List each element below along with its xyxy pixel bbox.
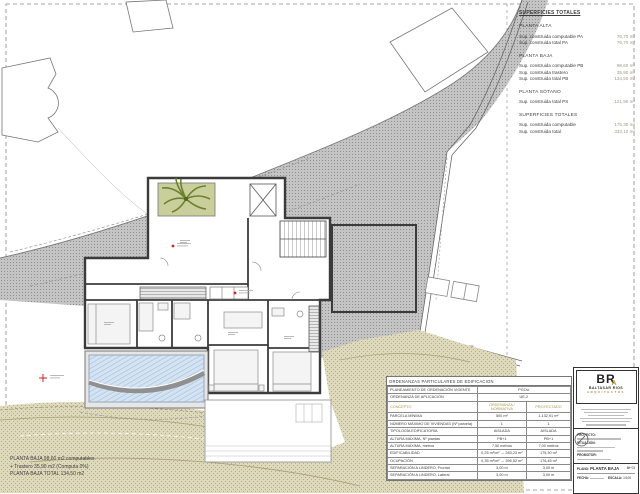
date-label: FECHA:: [577, 476, 589, 480]
surface-row: Sup. construida total 333,10 m²: [519, 129, 635, 135]
cell-concept: OCUPACIÓN: [388, 457, 478, 464]
surface-label: Sup. construida total PS: [519, 99, 568, 105]
table-row: TIPOLOGÍA EDIFICATORIA AISLADA AISLADA: [388, 428, 571, 435]
header-normativa: ORDENANZA / NORMATIVA: [477, 401, 526, 413]
surfaces-panel: SUPERFICIES TOTALES PLANTA ALTA Sup. con…: [519, 10, 635, 142]
table-row: NÚMERO MÁXIMO DE VIVIENDAS (Nº parcela) …: [388, 420, 571, 427]
cell-concept: TIPOLOGÍA EDIFICATORIA: [388, 428, 478, 435]
surface-value: 76,70 m²: [617, 40, 635, 46]
scale-label: ESCALA:: [608, 476, 622, 480]
terrace: [205, 400, 331, 462]
section-title: PLANTA SÓTANO: [519, 90, 635, 97]
location-value-line: [577, 447, 615, 449]
cell-concept: EDIFICABILIDAD: [388, 450, 478, 457]
plan-meta-row: FECHA: ESCALA: 1/100: [577, 476, 635, 480]
basement-roof-block: [332, 225, 416, 312]
header-proyectado: PROYECTADO: [527, 401, 571, 413]
cell-normativa: 0,25 m²/m² → 283,23 m²: [477, 450, 526, 457]
cell-value: UE-2: [477, 394, 570, 401]
cell-proyectado: 175,30 m²: [527, 450, 571, 457]
header-concept: CONCEPTO: [388, 401, 478, 413]
surface-label: Sup. construida total PA: [519, 40, 568, 46]
plan-number: 03: [631, 466, 635, 470]
title-block: BR A BALTASAR RIOS ARQUITECTOS PROYECTO:…: [573, 367, 639, 494]
location-value-line: [577, 450, 603, 452]
section-title: PLANTA ALTA: [519, 24, 635, 31]
cell-proyectado: 176,45 m²: [527, 457, 571, 464]
cell-concept: SEPARACIÓN A LINDERO, Lateral: [388, 472, 478, 479]
table-row: ALTURA MÁXIMA, Nº plantas PB+1 PB+1: [388, 435, 571, 442]
cell-proyectado: 1.132,91 m²: [527, 413, 571, 420]
cell-proyectado: 3,00 m: [527, 472, 571, 479]
cell-label: ORDENANZA DE APLICACIÓN: [388, 394, 478, 401]
note-line: + Trastero 35,90 m2 (Computa 0%): [10, 464, 94, 472]
fine-print: [574, 405, 638, 429]
section-title: PLANTA BAJA: [519, 54, 635, 61]
section-planta-sotano: PLANTA SÓTANO Sup. construida total PS 1…: [519, 90, 635, 106]
cell-proyectado: 1: [527, 420, 571, 427]
table-header-row: CONCEPTO ORDENANZA / NORMATIVA PROYECTAD…: [388, 401, 571, 413]
cell-proyectado: AISLADA: [527, 428, 571, 435]
surface-value: 333,10 m²: [614, 129, 635, 135]
date-value-line: [590, 478, 604, 480]
scale-value: 1/100: [623, 476, 631, 480]
parking-pads: [425, 277, 479, 302]
cell-concept: ALTURA MÁXIMA, metros: [388, 442, 478, 449]
logo-initials: BR: [577, 373, 636, 385]
surface-row: Sup. construida total PB 134,50 m²: [519, 76, 635, 82]
promoter-value-line: [577, 459, 611, 461]
logo-accent-letter: A: [612, 380, 617, 387]
table-row: SEPARACIÓN A LINDERO, Frontal 3,00 m 3,0…: [388, 464, 571, 471]
cell-normativa: PB+1: [477, 435, 526, 442]
plan-label: PLANO:: [577, 467, 589, 471]
fine-print-line: [581, 409, 631, 411]
project-info: PROYECTO: SITUACIÓN: PROMOTOR:: [574, 429, 638, 464]
architect-subtitle: ARQUITECTOS: [577, 390, 636, 394]
cell-value: PGOU: [477, 387, 570, 394]
note-line: PLANTA BAJA 98,60 m2 computables: [10, 456, 94, 464]
surfaces-title: SUPERFICIES TOTALES: [519, 10, 635, 17]
cell-concept: SEPARACIÓN A LINDERO, Frontal: [388, 464, 478, 471]
notes-block: PLANTA BAJA 98,60 m2 computables + Trast…: [10, 456, 94, 479]
fine-print-line: [580, 418, 632, 420]
table-row: PARCELA MÍNIMA 500 m² 1.132,91 m²: [388, 413, 571, 420]
ordenanzas-title: ORDENANZAS PARTICULARES DE EDIFICACION: [387, 377, 571, 386]
cell-normativa: AISLADA: [477, 428, 526, 435]
surface-value: 121,90 m²: [614, 99, 635, 105]
table-row: EDIFICABILIDAD 0,25 m²/m² → 283,23 m² 17…: [388, 450, 571, 457]
table-row: OCUPACIÓN 0,35 m²/m² → 396,52 m² 176,45 …: [388, 457, 571, 464]
surface-label: Sup. construida total: [519, 129, 561, 135]
fine-print-line: [584, 412, 628, 414]
section-totales: SUPERFICIES TOTALES Sup. construida comp…: [519, 113, 635, 136]
cell-proyectado: 7,00 metros: [527, 442, 571, 449]
cell-concept: ALTURA MÁXIMA, Nº plantas: [388, 435, 478, 442]
table-row: SEPARACIÓN A LINDERO, Lateral 3,00 m 3,0…: [388, 472, 571, 479]
pergola-louvers: [140, 287, 248, 299]
cell-concept: PARCELA MÍNIMA: [388, 413, 478, 420]
surface-value: 134,50 m²: [614, 76, 635, 82]
surface-label: Sup. construida total PB: [519, 76, 568, 82]
fine-print-line: [586, 424, 626, 426]
plan-name-box: PLANO: PLANTA BAJA Nº 03 FECHA: ESCALA: …: [574, 464, 638, 482]
cell-normativa: 7,50 metros: [477, 442, 526, 449]
cell-concept: NÚMERO MÁXIMO DE VIVIENDAS (Nº parcela): [388, 420, 478, 427]
cell-normativa: 0,35 m²/m² → 396,52 m²: [477, 457, 526, 464]
cell-normativa: 1: [477, 420, 526, 427]
skylight: [250, 184, 276, 216]
ordenanzas-table: ORDENANZAS PARTICULARES DE EDIFICACION P…: [386, 376, 572, 481]
fine-print-line: [588, 415, 624, 417]
cell-proyectado: 3,00 m: [527, 464, 571, 471]
plan-name-row: PLANO: PLANTA BAJA Nº 03: [577, 466, 635, 474]
plan-value: PLANTA BAJA: [590, 466, 619, 471]
courtyard-palm: [158, 178, 215, 216]
cell-normativa: 3,00 m: [477, 464, 526, 471]
table-row: ORDENANZA DE APLICACIÓN UE-2: [388, 394, 571, 401]
promoter-label: PROMOTOR:: [577, 453, 635, 457]
cell-normativa: 3,00 m: [477, 472, 526, 479]
cell-label: PLANEAMIENTO DE ORDENACIÓN VIGENTE: [388, 387, 478, 394]
plan-sheet: SUPERFICIES TOTALES PLANTA ALTA Sup. con…: [0, 0, 640, 494]
table-row: ALTURA MÁXIMA, metros 7,50 metros 7,00 m…: [388, 442, 571, 449]
section-planta-baja: PLANTA BAJA Sup. construida computable P…: [519, 54, 635, 83]
cell-normativa: 500 m²: [477, 413, 526, 420]
surface-row: Sup. construida total PA 76,70 m²: [519, 40, 635, 46]
section-title: SUPERFICIES TOTALES: [519, 113, 635, 120]
surface-row: Sup. construida total PS 121,90 m²: [519, 99, 635, 105]
section-planta-alta: PLANTA ALTA Sup. construida computable P…: [519, 24, 635, 47]
north-arrow-icon: [574, 432, 589, 447]
cell-proyectado: PB+1: [527, 435, 571, 442]
fine-print-line: [582, 421, 630, 423]
architect-logo: BR A BALTASAR RIOS ARQUITECTOS: [576, 370, 637, 404]
table-row: PLANEAMIENTO DE ORDENACIÓN VIGENTE PGOU: [388, 387, 571, 394]
note-line: PLANTA BAJA TOTAL 134,50 m2: [10, 471, 94, 479]
